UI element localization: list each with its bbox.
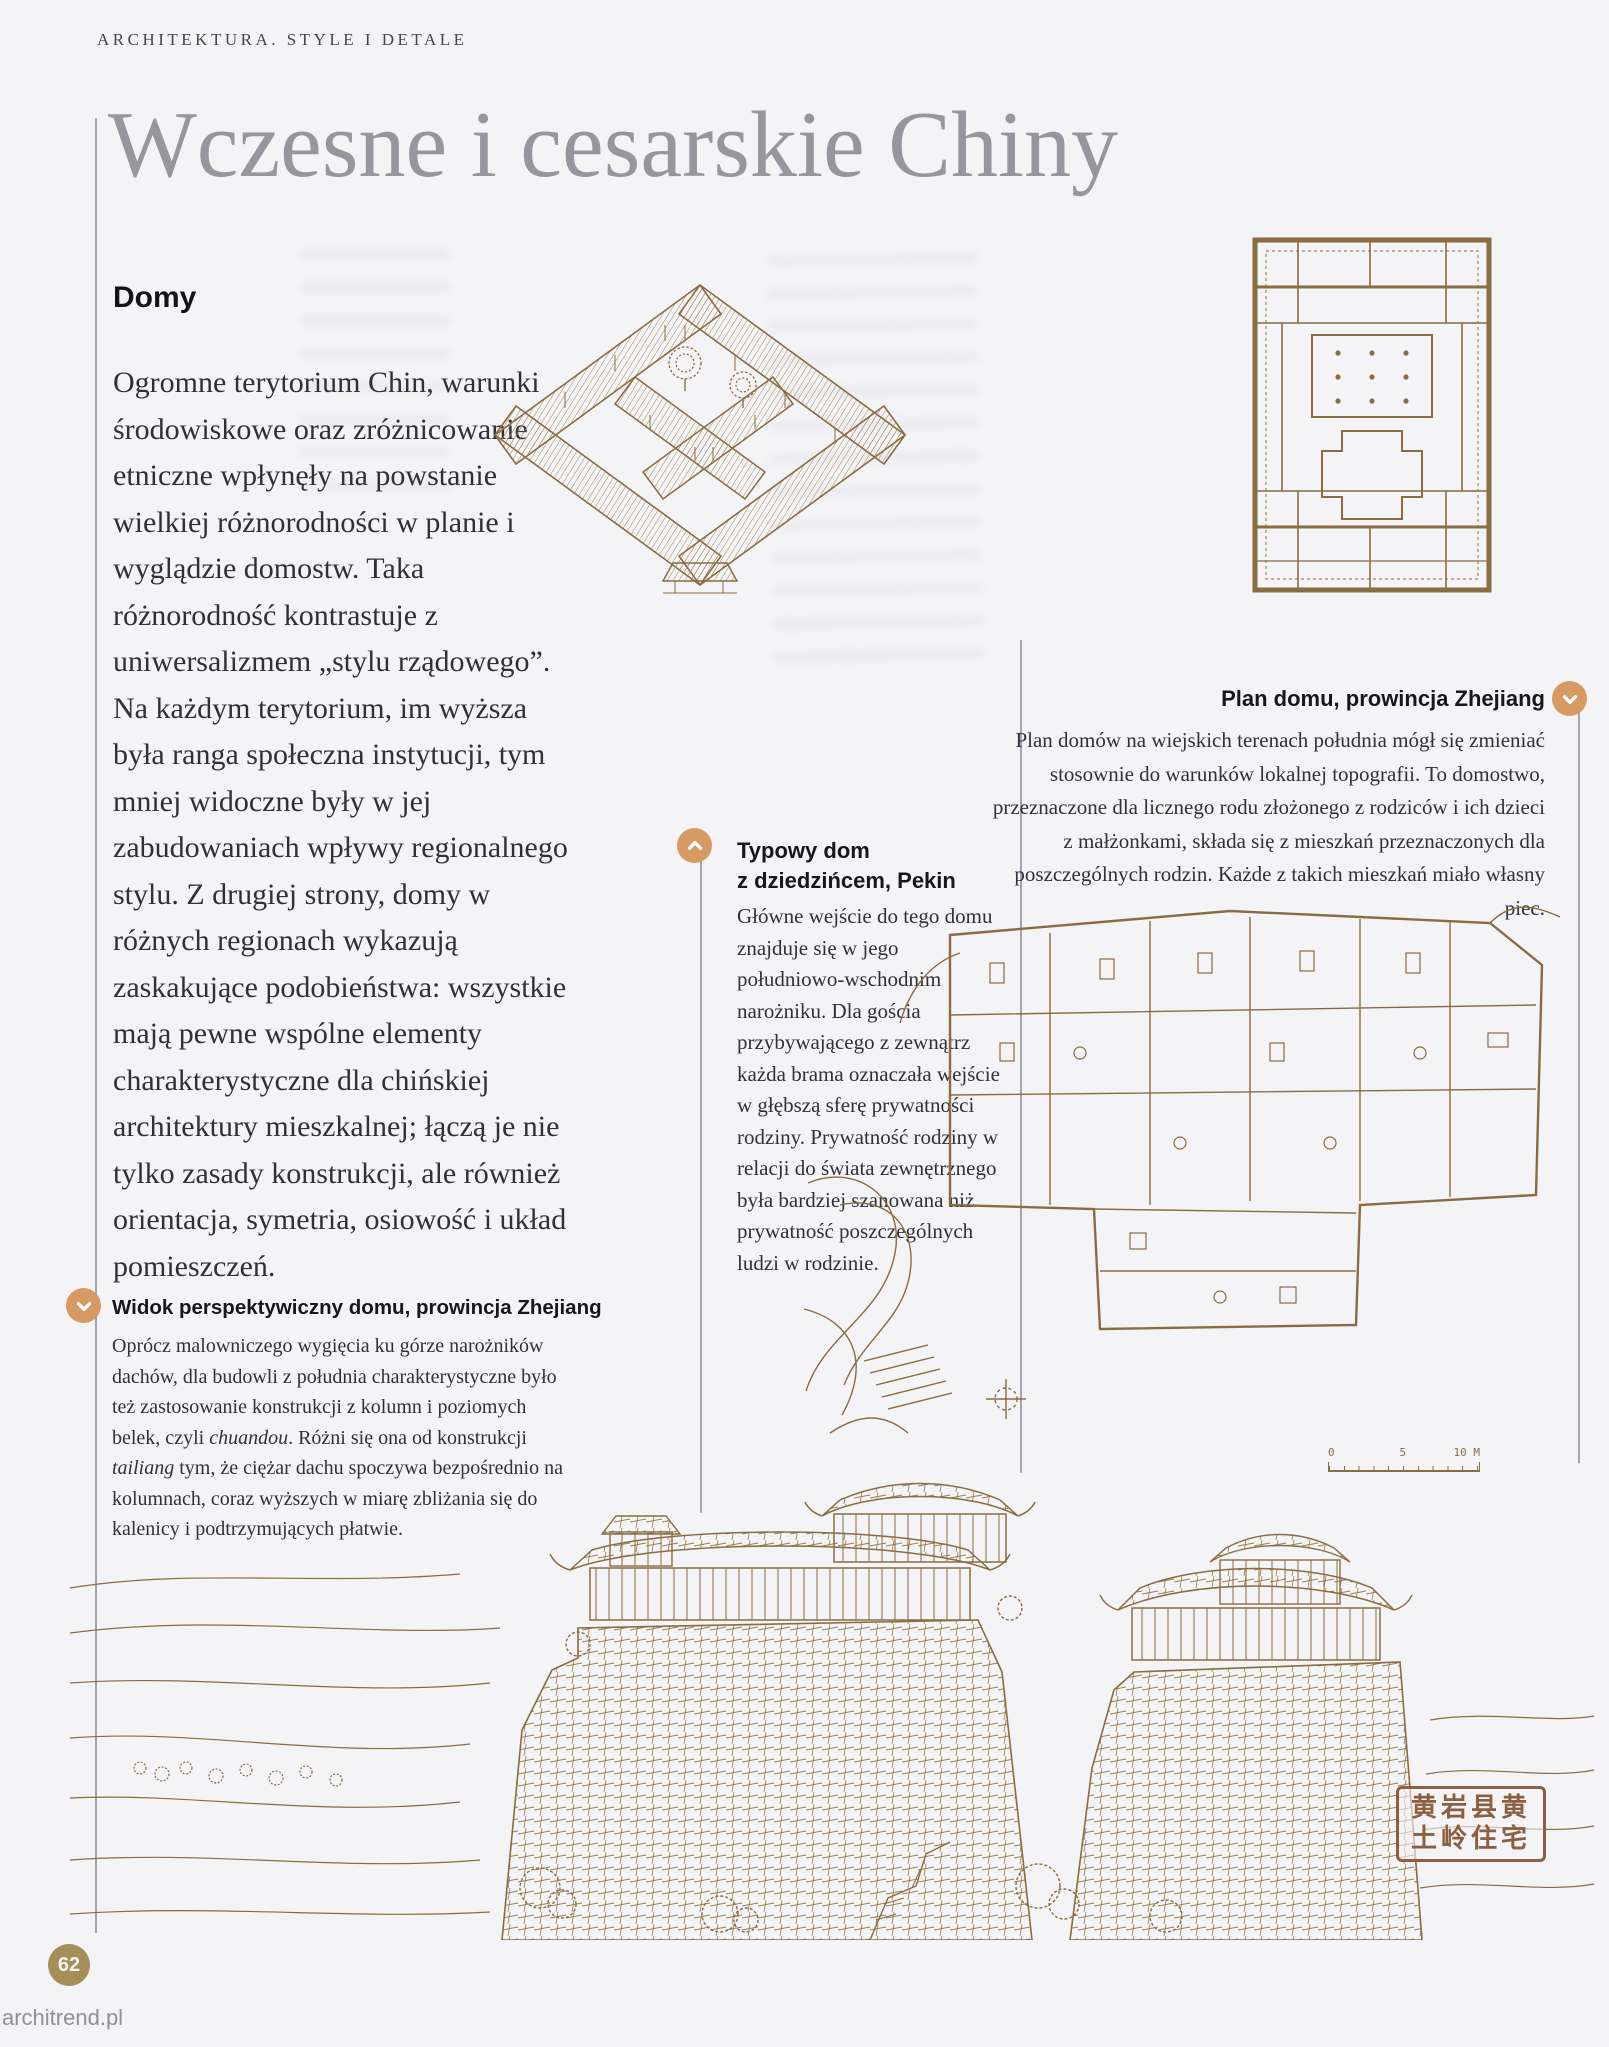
term-chuandou: chuandou [209, 1427, 288, 1449]
zhejiang-plan-figure [800, 893, 1595, 1453]
caption-courtyard-title: Typowy dom z dziedzińcem, Pekin [737, 836, 956, 896]
page-number: 62 [58, 1954, 80, 1977]
zhejiang-house-plan-drawing [800, 893, 1595, 1453]
page-number-badge: 62 [48, 1944, 90, 1986]
caption-marker [1552, 681, 1587, 716]
chevron-up-icon [684, 835, 706, 857]
watermark: architrend.pl [2, 2005, 123, 2031]
page-header: ARCHITEKTURA. STYLE I DETALE [97, 30, 468, 50]
seal-row-2: 土岭住宅 [1401, 1824, 1541, 1855]
scale-zero-label: 0 [1328, 1446, 1335, 1459]
beijing-house-plan-drawing [1250, 235, 1498, 597]
cliff-village-drawing [70, 1468, 1595, 1940]
beijing-plan-figure [1250, 235, 1498, 597]
seal-row-1: 黄岩县黄 [1401, 1793, 1541, 1824]
caption-courtyard-title-line1: Typowy dom [737, 838, 870, 863]
chinese-seal-stamp: 黄岩县黄 土岭住宅 [1396, 1786, 1546, 1862]
caption-marker [677, 828, 712, 863]
caption-perspective-text: . Różni się ona od konstrukcji [288, 1427, 527, 1449]
scale-ten-label: 10 M [1454, 1446, 1481, 1459]
panorama-illustration: 黄岩县黄 土岭住宅 [70, 1468, 1595, 1940]
scale-five-label: 5 [1399, 1446, 1406, 1459]
caption-marker [66, 1288, 101, 1323]
section-heading: Domy [113, 281, 196, 315]
chevron-down-icon [73, 1295, 95, 1317]
caption-perspective-title: Widok perspektywiczny domu, prowincja Zh… [112, 1296, 602, 1320]
caption-courtyard-title-line2: z dziedzińcem, Pekin [737, 868, 956, 893]
isometric-courtyard-illustration [435, 225, 965, 655]
caption-plan-title: Plan domu, prowincja Zhejiang [1000, 686, 1545, 712]
chevron-down-icon [1559, 688, 1581, 710]
column-divider [700, 848, 702, 1513]
page-title: Wczesne i cesarskie Chiny [108, 96, 1118, 195]
courtyard-house-drawing [435, 225, 965, 655]
book-page: ARCHITEKTURA. STYLE I DETALE Wczesne i c… [0, 0, 1609, 2047]
